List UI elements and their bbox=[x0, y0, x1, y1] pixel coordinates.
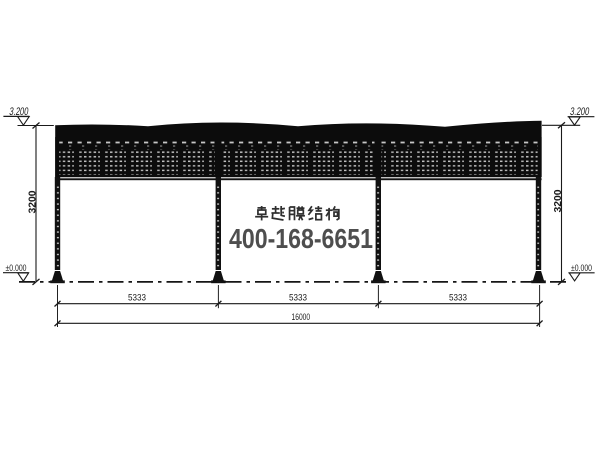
svg-text:3200: 3200 bbox=[27, 190, 38, 214]
svg-text:5333: 5333 bbox=[128, 292, 146, 302]
svg-text:3.200: 3.200 bbox=[9, 106, 30, 118]
svg-text:±0.000: ±0.000 bbox=[6, 263, 27, 273]
svg-text:5333: 5333 bbox=[449, 292, 467, 302]
svg-text:3200: 3200 bbox=[553, 189, 564, 213]
svg-text:5333: 5333 bbox=[289, 292, 307, 302]
svg-text:±0.000: ±0.000 bbox=[571, 263, 592, 273]
svg-text:400-168-6651: 400-168-6651 bbox=[229, 223, 373, 254]
svg-text:16000: 16000 bbox=[292, 312, 311, 322]
svg-text:3.200: 3.200 bbox=[569, 106, 590, 118]
